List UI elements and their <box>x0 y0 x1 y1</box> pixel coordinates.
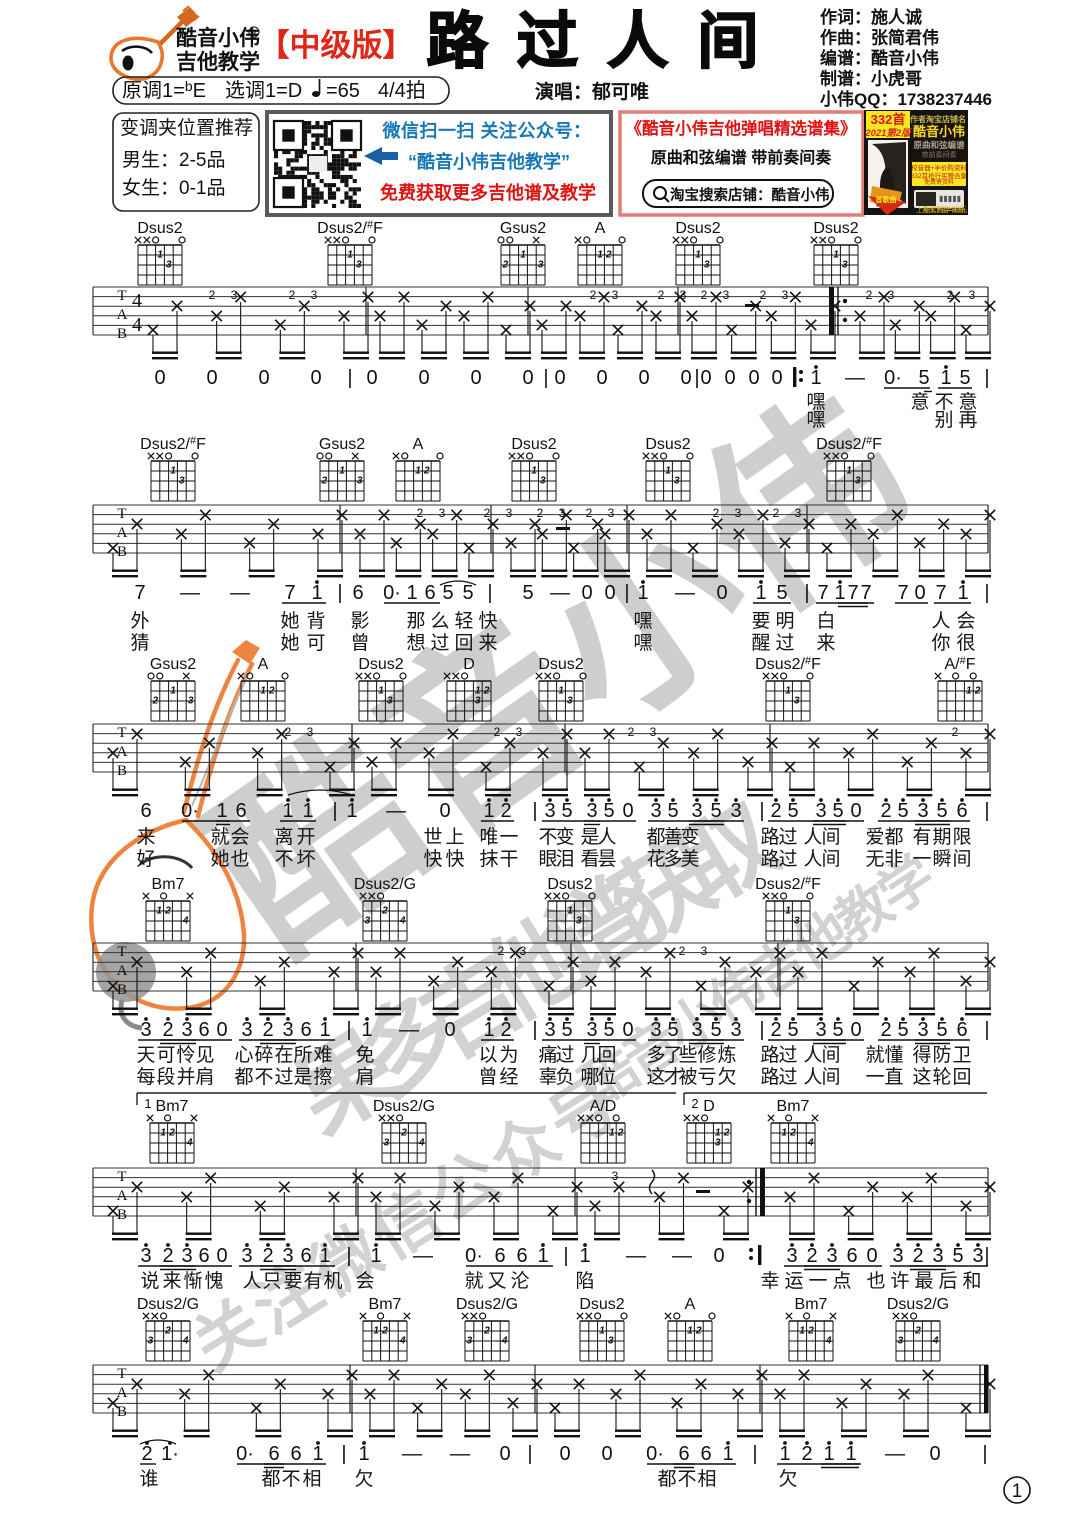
svg-text:Bm7: Bm7 <box>152 876 185 893</box>
svg-text:2: 2 <box>262 1245 273 1267</box>
svg-text:位: 位 <box>597 1066 616 1088</box>
svg-text:可: 可 <box>156 1045 175 1066</box>
svg-text:影: 影 <box>350 610 369 632</box>
svg-text:2: 2 <box>912 1245 923 1267</box>
svg-text:1: 1 <box>531 466 537 477</box>
svg-text:被: 被 <box>678 1066 697 1088</box>
svg-text:2: 2 <box>723 1128 730 1139</box>
svg-text:酷音小伟: 酷音小伟 <box>913 124 965 139</box>
svg-text:0: 0 <box>596 367 607 389</box>
svg-text:是: 是 <box>293 1067 312 1088</box>
svg-text:3: 3 <box>612 1169 619 1183</box>
svg-text:1: 1 <box>319 1019 330 1041</box>
svg-text:作者淘宝店铺名: 作者淘宝店铺名 <box>910 114 966 124</box>
svg-text:段: 段 <box>156 1066 175 1088</box>
svg-text:1: 1 <box>346 800 357 822</box>
svg-text:Dsus2: Dsus2 <box>813 220 858 237</box>
svg-text:3: 3 <box>357 476 363 487</box>
svg-text:3: 3 <box>826 1245 837 1267</box>
svg-text:A/D: A/D <box>590 1098 617 1115</box>
svg-text:3: 3 <box>680 288 687 302</box>
svg-text:3: 3 <box>540 476 546 487</box>
svg-text:3: 3 <box>311 288 318 302</box>
svg-text:A: A <box>595 220 606 237</box>
svg-text:—: — <box>399 1019 419 1041</box>
svg-text:选调1=D: 选调1=D <box>225 79 302 102</box>
svg-text:2: 2 <box>168 1128 175 1139</box>
svg-text:3: 3 <box>691 1019 702 1041</box>
svg-text:3: 3 <box>231 288 238 302</box>
svg-text:醒: 醒 <box>751 633 770 654</box>
svg-text:1: 1 <box>785 686 791 697</box>
svg-text:1: 1 <box>665 466 671 477</box>
svg-text:3: 3 <box>181 1019 192 1041</box>
svg-text:“酷音小伟吉他教学”: “酷音小伟吉他教学” <box>408 151 570 172</box>
svg-text:—: — <box>626 1245 646 1267</box>
svg-text:0: 0 <box>929 1443 940 1465</box>
svg-text:2: 2 <box>381 906 388 917</box>
svg-text:世: 世 <box>423 826 442 848</box>
svg-text:6: 6 <box>846 1245 857 1267</box>
svg-text:防: 防 <box>932 1044 951 1066</box>
svg-text:吉他教学: 吉他教学 <box>176 50 260 74</box>
svg-text:7: 7 <box>860 582 871 604</box>
svg-text:会: 会 <box>230 826 249 848</box>
svg-text:就: 就 <box>865 1044 884 1066</box>
svg-text:|: | <box>984 1019 989 1041</box>
svg-text:可: 可 <box>306 633 325 654</box>
svg-text:|: | <box>624 582 629 604</box>
svg-text:Dsus2/#F: Dsus2/#F <box>140 435 206 453</box>
svg-text:相: 相 <box>697 1468 716 1490</box>
svg-text:4: 4 <box>182 916 189 927</box>
svg-text:校音器+半价购资料: 校音器+半价购资料 <box>911 163 967 172</box>
svg-text:|: | <box>347 367 352 389</box>
svg-text:3: 3 <box>439 506 446 520</box>
svg-text:|: | <box>527 1443 532 1465</box>
svg-text:女生：0-1品: 女生：0-1品 <box>122 177 225 199</box>
svg-text:Dsus2: Dsus2 <box>645 436 690 453</box>
svg-text:3: 3 <box>855 476 861 487</box>
svg-text:6: 6 <box>198 1245 209 1267</box>
svg-text:3: 3 <box>365 916 371 927</box>
svg-text:作词：施人诚: 作词：施人诚 <box>820 7 922 27</box>
svg-text:|: | <box>532 1019 537 1041</box>
svg-text:1: 1 <box>156 906 162 917</box>
svg-text:1: 1 <box>361 1019 372 1041</box>
svg-text:—: — <box>413 1245 433 1267</box>
svg-text:3: 3 <box>181 1245 192 1267</box>
svg-text:3: 3 <box>650 800 661 822</box>
svg-text:B: B <box>117 544 127 560</box>
svg-text:外: 外 <box>130 610 149 632</box>
svg-text:2: 2 <box>289 288 296 302</box>
svg-text:|: | <box>984 1245 989 1267</box>
svg-text:2: 2 <box>381 1326 388 1337</box>
svg-text:—: — <box>845 367 865 389</box>
svg-text:5: 5 <box>710 1019 721 1041</box>
svg-text:也: 也 <box>866 1270 885 1292</box>
svg-text:1: 1 <box>537 1245 548 1267</box>
svg-text:5: 5 <box>776 582 787 604</box>
svg-text:6: 6 <box>268 1443 279 1465</box>
svg-text:B: B <box>117 1404 127 1420</box>
svg-text:嘿: 嘿 <box>806 410 825 431</box>
svg-text:过: 过 <box>778 1044 797 1066</box>
svg-text:别: 别 <box>934 409 953 431</box>
svg-text:她: 她 <box>280 610 299 632</box>
svg-text:0: 0 <box>554 367 565 389</box>
svg-text:难: 难 <box>313 1044 332 1066</box>
svg-text:2: 2 <box>880 1019 891 1041</box>
svg-text:碎: 碎 <box>254 1044 273 1066</box>
svg-text:1: 1 <box>957 582 968 604</box>
svg-text:1: 1 <box>579 1245 590 1267</box>
svg-text:来: 来 <box>162 1270 181 1292</box>
svg-text:来: 来 <box>816 632 835 654</box>
svg-text:并: 并 <box>176 1066 195 1088</box>
svg-text:欠: 欠 <box>717 1066 736 1088</box>
svg-text:酷音小伟: 酷音小伟 <box>176 26 260 50</box>
svg-text:1: 1 <box>755 582 766 604</box>
svg-text:0: 0 <box>470 367 481 389</box>
svg-text:沦: 沦 <box>510 1270 529 1292</box>
svg-text:3: 3 <box>384 1138 390 1149</box>
svg-text:2: 2 <box>152 696 159 707</box>
svg-text:1: 1 <box>597 250 603 261</box>
svg-text:路 过 人 间: 路 过 人 间 <box>427 8 766 76</box>
svg-text:离: 离 <box>274 826 293 848</box>
svg-text:谁: 谁 <box>139 1468 158 1490</box>
svg-text:间: 间 <box>952 848 971 870</box>
svg-text:来: 来 <box>478 632 497 654</box>
svg-text:3: 3 <box>701 944 708 958</box>
svg-text:6: 6 <box>235 800 246 822</box>
svg-text:3: 3 <box>815 1019 826 1041</box>
svg-text:2: 2 <box>773 506 780 520</box>
svg-text:2: 2 <box>483 686 490 697</box>
svg-text:2: 2 <box>760 288 767 302</box>
svg-text:懂: 懂 <box>884 1044 903 1066</box>
svg-text:怜: 怜 <box>176 1044 195 1066</box>
svg-text:6: 6 <box>424 582 435 604</box>
svg-text:—: — <box>550 582 570 604</box>
svg-text:2: 2 <box>701 288 708 302</box>
svg-text:5: 5 <box>522 582 533 604</box>
svg-text:5: 5 <box>561 800 572 822</box>
svg-text:—: — <box>450 1443 470 1465</box>
svg-text:Bm7: Bm7 <box>777 1098 810 1115</box>
svg-text:无: 无 <box>865 849 884 870</box>
svg-text:间: 间 <box>821 1066 840 1088</box>
svg-text:路: 路 <box>760 1044 779 1066</box>
svg-text:0: 0 <box>499 1443 510 1465</box>
svg-text:4: 4 <box>807 1138 814 1149</box>
svg-text:0: 0 <box>850 1019 861 1041</box>
svg-text:么: 么 <box>430 610 449 632</box>
svg-text:5: 5 <box>959 367 970 389</box>
svg-text:2: 2 <box>162 1019 173 1041</box>
svg-text:Dsus2: Dsus2 <box>511 436 556 453</box>
svg-text:3: 3 <box>917 800 928 822</box>
svg-text:原曲和弦编谱 带前奏间奏: 原曲和弦编谱 带前奏间奏 <box>651 148 832 167</box>
svg-text:D: D <box>703 1098 715 1115</box>
svg-text:白: 白 <box>816 610 835 632</box>
svg-text:都: 都 <box>884 826 903 848</box>
svg-text:2: 2 <box>268 686 275 697</box>
svg-text:T: T <box>117 288 126 304</box>
svg-text:你: 你 <box>931 632 950 654</box>
svg-text:1: 1 <box>834 582 845 604</box>
svg-text:许: 许 <box>890 1270 909 1292</box>
svg-text:3: 3 <box>715 1138 721 1149</box>
svg-text:5: 5 <box>952 1245 963 1267</box>
svg-text:瞬: 瞬 <box>932 848 951 870</box>
svg-text:0·: 0· <box>236 1443 254 1465</box>
svg-text:人: 人 <box>931 610 950 632</box>
svg-text:1: 1 <box>567 906 573 917</box>
svg-text:为: 为 <box>499 1044 518 1066</box>
svg-text:3: 3 <box>815 800 826 822</box>
svg-text:会: 会 <box>956 610 975 632</box>
svg-text:2: 2 <box>498 944 505 958</box>
svg-text:0: 0 <box>850 800 861 822</box>
svg-text:4: 4 <box>825 1336 832 1347</box>
svg-text:间: 间 <box>821 848 840 870</box>
svg-text:再: 再 <box>958 410 977 431</box>
svg-text:A: A <box>117 307 128 323</box>
svg-text:见: 见 <box>195 1045 214 1066</box>
svg-text:间: 间 <box>821 826 840 848</box>
svg-text:机: 机 <box>323 1270 342 1292</box>
svg-text:6: 6 <box>494 1245 505 1267</box>
svg-text:5: 5 <box>897 800 908 822</box>
svg-text:4/4拍: 4/4拍 <box>378 79 426 102</box>
svg-text:2: 2 <box>484 506 491 520</box>
svg-text:2: 2 <box>483 1326 490 1337</box>
svg-text:0: 0 <box>700 367 711 389</box>
svg-text:3: 3 <box>691 800 702 822</box>
svg-text:免费寄资料: 免费寄资料 <box>924 178 954 186</box>
svg-text:0: 0 <box>154 367 165 389</box>
svg-text:Dsus2/G: Dsus2/G <box>456 1296 518 1313</box>
svg-text:|: | <box>984 367 989 389</box>
svg-text:1: 1 <box>781 1128 787 1139</box>
svg-text:Dsus2/#F: Dsus2/#F <box>755 655 821 673</box>
svg-text:1: 1 <box>370 1245 381 1267</box>
svg-text:会: 会 <box>355 1270 374 1292</box>
svg-text:Gsus2: Gsus2 <box>500 220 546 237</box>
svg-text:点: 点 <box>832 1270 851 1292</box>
svg-text:过: 过 <box>778 848 797 870</box>
svg-text:Dsus2/#F: Dsus2/#F <box>816 435 882 453</box>
svg-text:A: A <box>117 963 128 979</box>
svg-text:运: 运 <box>784 1271 803 1292</box>
svg-text:得: 得 <box>912 1044 931 1066</box>
svg-text:2: 2 <box>164 1326 171 1337</box>
svg-text:1: 1 <box>373 1326 379 1337</box>
svg-text:R: R <box>251 30 256 37</box>
svg-text:要: 要 <box>283 1271 302 1292</box>
svg-text:一: 一 <box>912 849 931 870</box>
svg-text:1: 1 <box>170 686 176 697</box>
svg-text:5: 5 <box>561 1019 572 1041</box>
svg-text:人: 人 <box>803 826 822 848</box>
svg-text:Dsus2: Dsus2 <box>358 656 403 673</box>
svg-text:1: 1 <box>415 466 421 477</box>
svg-text:1: 1 <box>687 1326 693 1337</box>
svg-text:4: 4 <box>418 1138 425 1149</box>
svg-text:2: 2 <box>590 288 597 302</box>
svg-text:4: 4 <box>182 1336 189 1347</box>
svg-text:0: 0 <box>604 582 615 604</box>
svg-text:人: 人 <box>803 848 822 870</box>
svg-text:T: T <box>117 944 126 960</box>
svg-text:3: 3 <box>140 1245 151 1267</box>
svg-text:|: | <box>543 367 548 389</box>
svg-text:欠: 欠 <box>354 1468 373 1490</box>
svg-text:心: 心 <box>234 1045 253 1066</box>
svg-text:1: 1 <box>940 367 951 389</box>
svg-text:3: 3 <box>704 260 710 271</box>
svg-text:3: 3 <box>586 1019 597 1041</box>
svg-text:1: 1 <box>144 1096 151 1111</box>
svg-text:免: 免 <box>355 1044 374 1066</box>
svg-text:=65: =65 <box>326 80 360 102</box>
svg-text:3: 3 <box>888 288 895 302</box>
svg-text:3: 3 <box>538 260 544 271</box>
svg-text:经: 经 <box>499 1066 518 1088</box>
svg-text:说: 说 <box>140 1270 159 1292</box>
svg-text:亏: 亏 <box>697 1067 716 1088</box>
svg-text:|: | <box>759 1019 764 1041</box>
svg-text:人: 人 <box>803 1044 822 1066</box>
svg-text:7: 7 <box>935 582 946 604</box>
svg-text:1: 1 <box>319 1245 330 1267</box>
svg-text:2: 2 <box>262 1019 273 1041</box>
svg-text:Gsus2: Gsus2 <box>319 436 365 453</box>
svg-text:1: 1 <box>170 466 176 477</box>
svg-text:A: A <box>258 656 269 673</box>
svg-text:期: 期 <box>932 826 951 848</box>
svg-text:2: 2 <box>974 686 981 697</box>
svg-text:路: 路 <box>760 1066 779 1088</box>
svg-text:愧: 愧 <box>204 1270 223 1292</box>
svg-text:T: T <box>117 1169 126 1185</box>
svg-text:些: 些 <box>678 1044 697 1066</box>
svg-text:过: 过 <box>778 826 797 848</box>
svg-text:5: 5 <box>787 800 798 822</box>
svg-text:Dsus2: Dsus2 <box>547 876 592 893</box>
svg-text:3: 3 <box>842 260 848 271</box>
svg-text:Dsus2: Dsus2 <box>538 656 583 673</box>
svg-text:2: 2 <box>801 1443 812 1465</box>
svg-text:嘿: 嘿 <box>633 633 652 654</box>
svg-text:回: 回 <box>454 633 473 654</box>
svg-text:3: 3 <box>917 1019 928 1041</box>
svg-text:2: 2 <box>400 1128 407 1139</box>
svg-text:▮▮▮▮▮: ▮▮▮▮▮ <box>939 194 961 203</box>
svg-text:1: 1 <box>378 686 384 697</box>
svg-text:2: 2 <box>285 725 292 739</box>
svg-text:《酷音小伟吉他弹唱精选谱集》: 《酷音小伟吉他弹唱精选谱集》 <box>626 118 857 138</box>
svg-text:5: 5 <box>936 1019 947 1041</box>
svg-text:昙: 昙 <box>597 849 616 870</box>
svg-text:|: | <box>337 582 342 604</box>
svg-text:3: 3 <box>567 696 573 707</box>
svg-text:3: 3 <box>612 288 619 302</box>
svg-text:6: 6 <box>300 1019 311 1041</box>
svg-text:1: 1 <box>558 686 564 697</box>
svg-text:想: 想 <box>406 632 425 654</box>
svg-text:|: | <box>332 800 337 822</box>
svg-text:一: 一 <box>499 827 518 848</box>
svg-text:0: 0 <box>439 800 450 822</box>
svg-text:0: 0 <box>680 367 691 389</box>
svg-text:1: 1 <box>609 1128 615 1139</box>
svg-text:3: 3 <box>794 696 800 707</box>
svg-text:5: 5 <box>787 1019 798 1041</box>
svg-text:路: 路 <box>760 826 779 848</box>
svg-text:6: 6 <box>352 582 363 604</box>
svg-text:2: 2 <box>695 1326 702 1337</box>
svg-text:3: 3 <box>520 944 527 958</box>
svg-text:Dsus2/G: Dsus2/G <box>373 1098 435 1115</box>
svg-text:332首: 332首 <box>871 112 906 127</box>
svg-text:1: 1 <box>302 800 313 822</box>
svg-text:1: 1 <box>358 1443 369 1465</box>
svg-text:5: 5 <box>918 367 929 389</box>
svg-text:原调1=bE: 原调1=bE <box>122 78 206 102</box>
svg-text:—: — <box>230 582 250 604</box>
svg-text:6: 6 <box>290 1443 301 1465</box>
svg-text:0: 0 <box>366 367 377 389</box>
svg-text:1: 1 <box>520 250 526 261</box>
svg-text:1: 1 <box>785 906 791 917</box>
svg-text:0: 0 <box>748 367 759 389</box>
svg-text:4: 4 <box>399 916 406 927</box>
svg-text:演唱：郁可唯: 演唱：郁可唯 <box>535 80 649 103</box>
svg-text:人: 人 <box>803 1066 822 1088</box>
svg-text:|: | <box>984 582 989 604</box>
svg-text:2: 2 <box>880 800 891 822</box>
svg-text:Dsus2/G: Dsus2/G <box>354 876 416 893</box>
svg-text:她: 她 <box>210 848 229 870</box>
svg-text:B: B <box>117 1207 127 1223</box>
svg-text:5: 5 <box>832 800 843 822</box>
svg-text:Dsus2: Dsus2 <box>675 220 720 237</box>
svg-text:|: | <box>563 1245 568 1267</box>
svg-text:7: 7 <box>134 582 145 604</box>
svg-text:变: 变 <box>555 826 574 848</box>
svg-text:编谱：酷音小伟: 编谱：酷音小伟 <box>820 48 939 68</box>
svg-text:1: 1 <box>810 367 821 389</box>
svg-text:3: 3 <box>608 506 615 520</box>
svg-text:2: 2 <box>537 506 544 520</box>
svg-text:修: 修 <box>697 1044 716 1066</box>
svg-text:|: | <box>487 582 492 604</box>
svg-text:Dsus2/#F: Dsus2/#F <box>317 219 383 237</box>
svg-text:就: 就 <box>210 826 229 848</box>
svg-text:2: 2 <box>947 288 954 302</box>
svg-text:|: | <box>532 800 537 822</box>
svg-text:1: 1 <box>1012 1481 1023 1502</box>
svg-text:轮: 轮 <box>932 1066 951 1088</box>
svg-text:变调夹位置推荐: 变调夹位置推荐 <box>120 117 253 139</box>
svg-text:2: 2 <box>502 260 509 271</box>
svg-text:7: 7 <box>897 582 908 604</box>
svg-text:A: A <box>117 525 128 541</box>
